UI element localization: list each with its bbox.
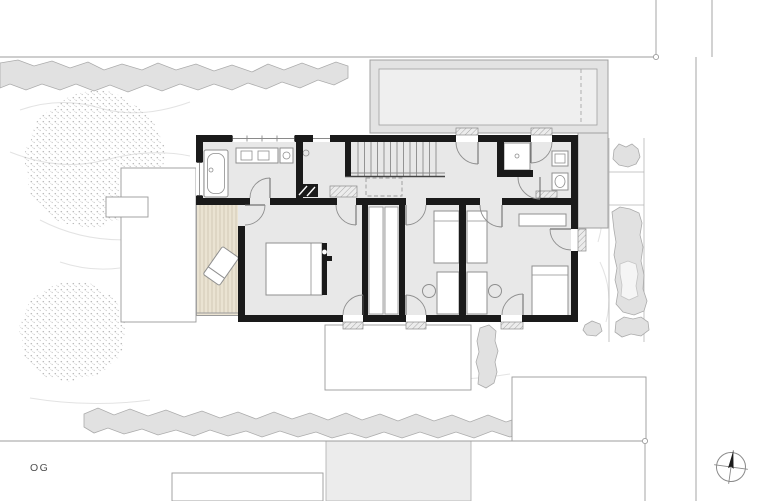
shower	[504, 143, 530, 170]
wc-radiator	[536, 191, 557, 198]
wardrobe-wall-right	[399, 205, 405, 315]
master-balcony-wall	[238, 226, 245, 315]
building	[196, 128, 586, 329]
floor-label: OG	[30, 462, 49, 474]
balcony-deck	[196, 204, 239, 316]
sill	[343, 322, 363, 329]
kid2-bed	[467, 211, 487, 263]
guest-bed	[532, 266, 568, 316]
window-bath-top	[232, 135, 295, 142]
vanity	[236, 148, 278, 163]
north-arrow-icon	[712, 448, 750, 486]
floor-plan-canvas: OG	[0, 0, 768, 501]
window-landing-top	[313, 135, 330, 142]
kids-dividing-wall	[459, 205, 466, 315]
hedge-top	[0, 60, 348, 92]
window-bath-left	[196, 162, 203, 196]
wardrobe-strip-2	[385, 207, 398, 314]
dresser	[519, 214, 566, 226]
kid2-desk	[467, 272, 487, 314]
sill	[501, 322, 523, 329]
shrub-below-house	[476, 325, 498, 388]
kid1-bed	[434, 211, 459, 263]
floor-plan-page: OG	[0, 0, 768, 501]
stair-wall	[345, 142, 351, 176]
wardrobe-strip-1	[369, 207, 383, 314]
wc-sink	[552, 151, 568, 166]
sill	[531, 128, 552, 135]
sill	[406, 322, 426, 329]
wc-wall-h	[497, 170, 533, 177]
kid1-desk	[437, 272, 459, 314]
sill	[456, 128, 478, 135]
tree-small	[19, 281, 125, 381]
hall-radiator	[330, 186, 357, 197]
sill	[578, 229, 586, 251]
washer	[280, 148, 293, 163]
master-bed	[266, 243, 322, 295]
